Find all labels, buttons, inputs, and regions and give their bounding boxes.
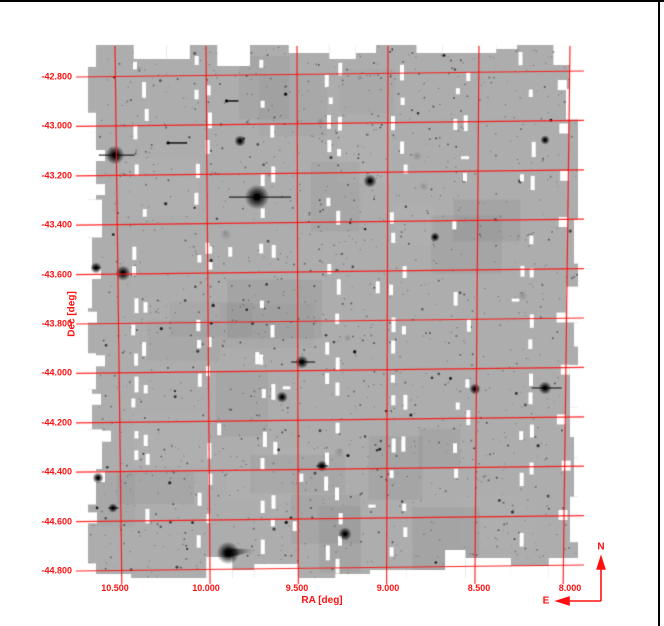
x-axis-title: RA [deg] xyxy=(301,595,342,606)
y-tick-label: -43.600 xyxy=(41,270,72,279)
compass-north-label: N xyxy=(597,542,604,553)
y-tick-label: -44.400 xyxy=(41,468,72,477)
compass-east-label: E xyxy=(543,596,550,607)
y-tick-label: -43.200 xyxy=(41,171,72,180)
x-tick-label: 8.000 xyxy=(559,584,582,593)
compass-north-arrowhead xyxy=(597,557,605,569)
y-tick-label: -44.000 xyxy=(41,369,72,378)
y-tick-label: -44.800 xyxy=(41,567,72,576)
x-tick-label: 10.500 xyxy=(101,584,129,593)
x-tick-label: 8.500 xyxy=(468,584,491,593)
y-axis-title: Dec [deg] xyxy=(67,291,78,337)
y-tick-label: -43.400 xyxy=(41,221,72,230)
compass-arrows xyxy=(0,0,664,626)
window-border-right xyxy=(658,0,660,626)
figure-window: -42.800-43.000-43.200-43.400-43.600-43.8… xyxy=(0,0,664,626)
y-tick-label: -44.200 xyxy=(41,418,72,427)
x-tick-label: 10.000 xyxy=(192,584,220,593)
y-tick-label: -43.000 xyxy=(41,122,72,131)
compass-east-arrowhead xyxy=(557,597,569,605)
window-border-top xyxy=(0,0,664,2)
y-tick-label: -42.800 xyxy=(41,73,72,82)
y-tick-label: -44.600 xyxy=(41,517,72,526)
x-tick-label: 9.000 xyxy=(377,584,400,593)
x-tick-label: 9.500 xyxy=(286,584,309,593)
